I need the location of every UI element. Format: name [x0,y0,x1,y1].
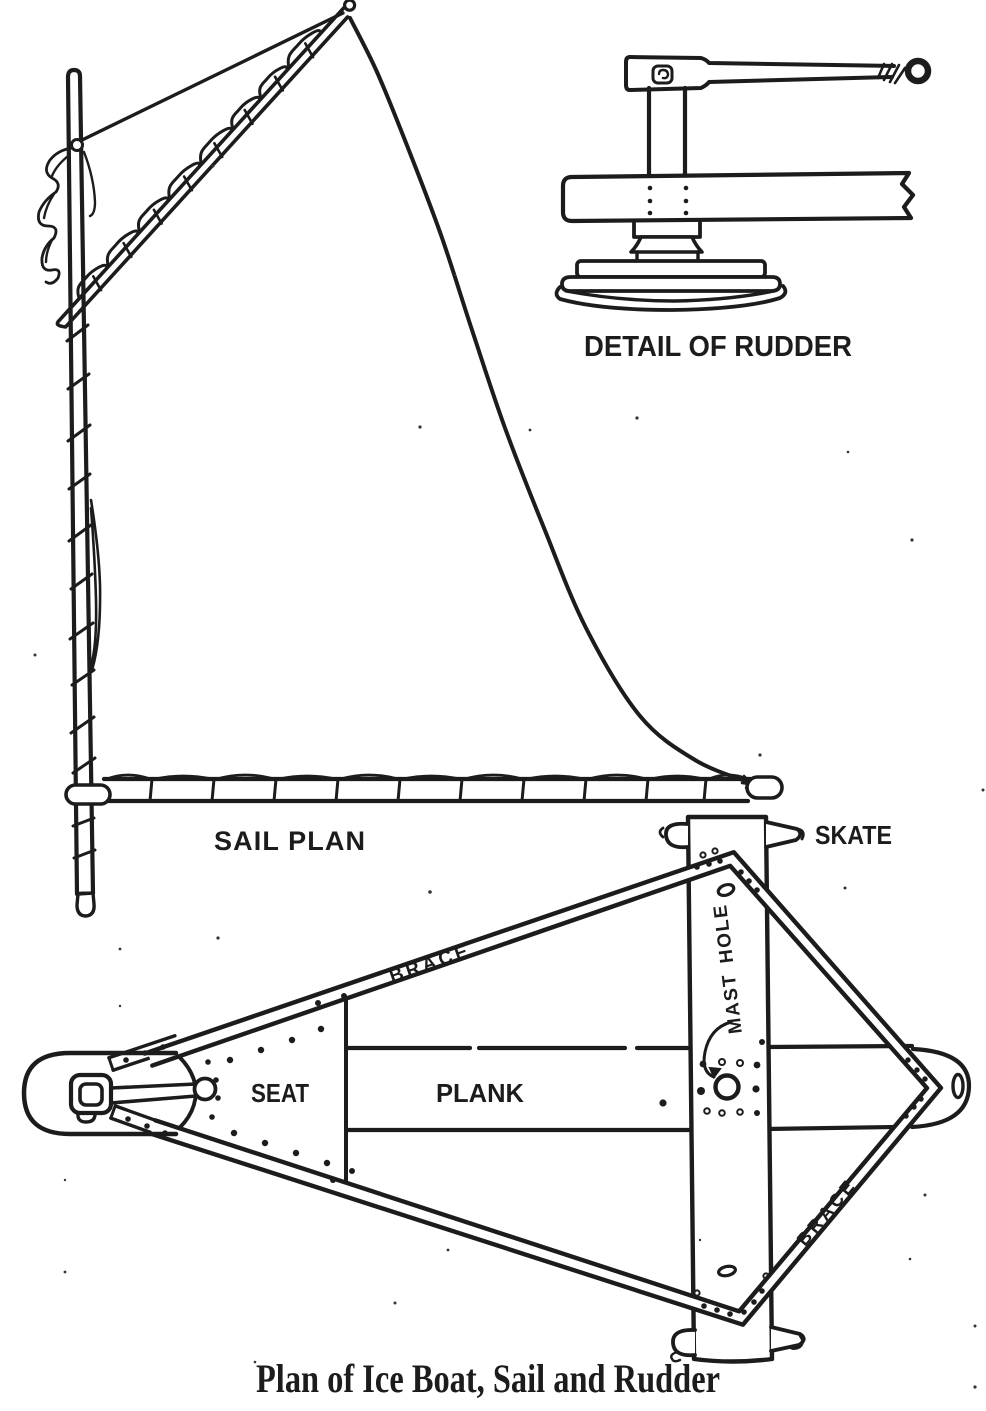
svg-text:Plan of Ice Boat, Sail and Rud: Plan of Ice Boat, Sail and Rudder [256,1356,720,1401]
svg-text:PLANK: PLANK [436,1078,524,1108]
svg-text:SEAT: SEAT [251,1078,309,1108]
svg-text:DETAIL OF RUDDER: DETAIL OF RUDDER [584,331,852,363]
svg-text:SAIL PLAN: SAIL PLAN [214,826,365,856]
svg-text:SKATE: SKATE [815,820,892,850]
